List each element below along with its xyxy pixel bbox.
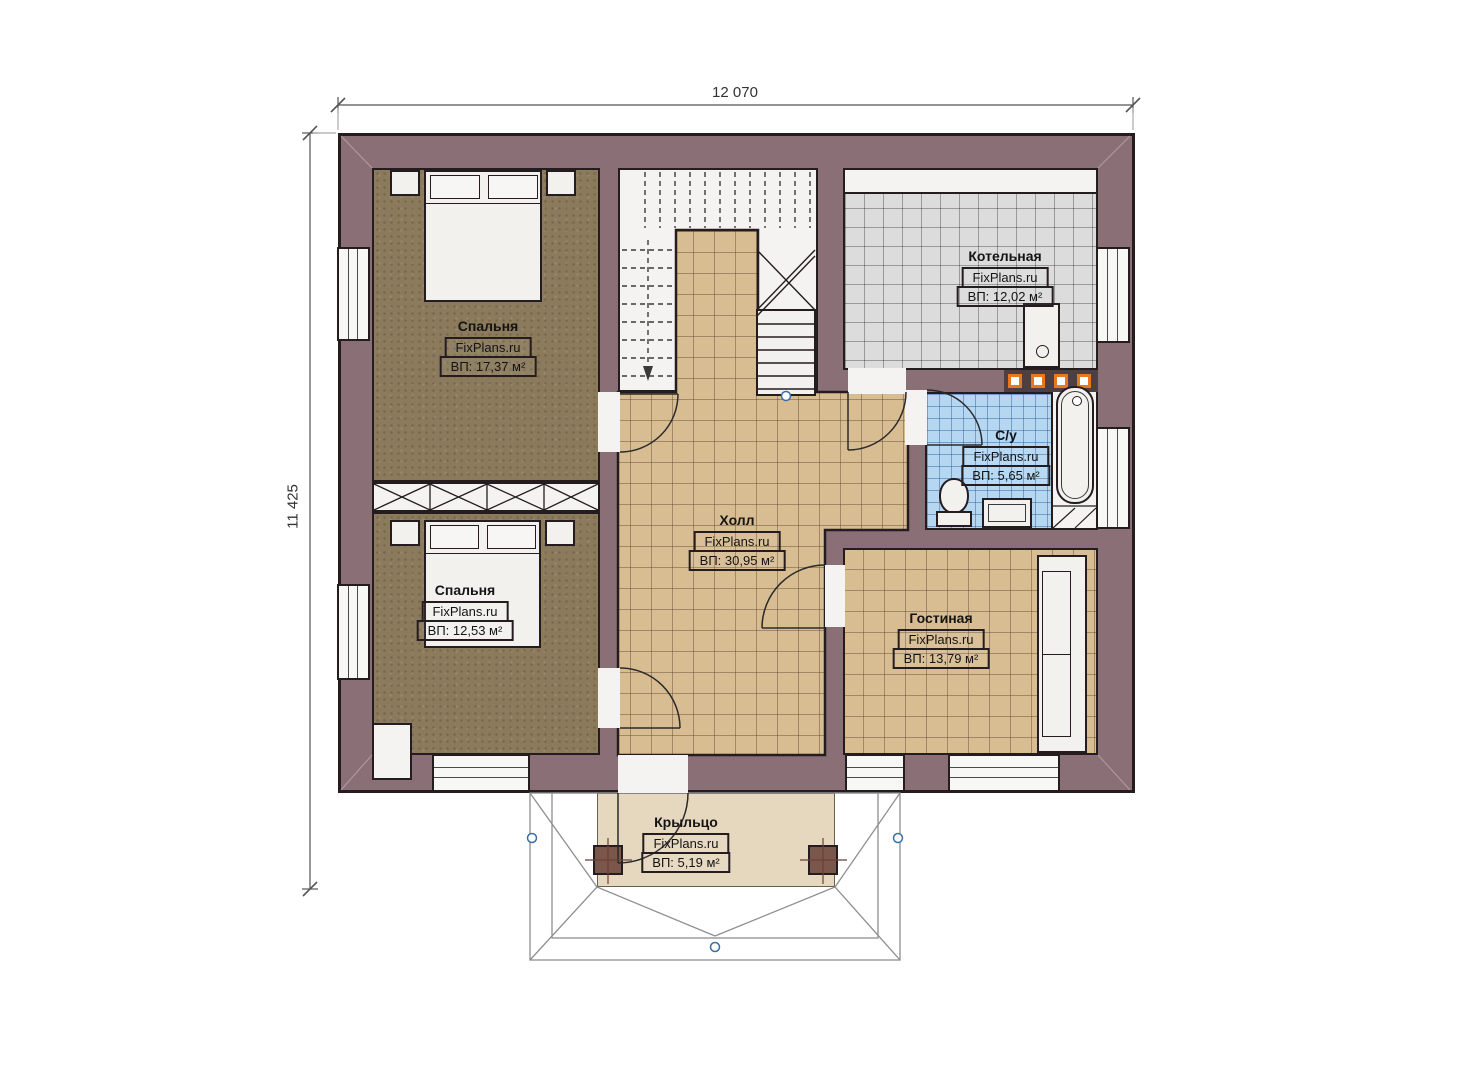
window-bedroom1-left bbox=[337, 247, 370, 341]
room-name: Спальня bbox=[417, 582, 514, 598]
room-label-hall: Холл FixPlans.ru ВП: 30,95 м² bbox=[689, 512, 786, 571]
dimension-top-label: 12 070 bbox=[712, 84, 758, 101]
double-bed-bedroom1 bbox=[424, 170, 542, 302]
room-label-bedroom2: Спальня FixPlans.ru ВП: 12,53 м² bbox=[417, 582, 514, 641]
watermark-badge: FixPlans.ru bbox=[897, 629, 984, 650]
dimension-line-top bbox=[331, 97, 1140, 130]
floor-plan-canvas: 12 070 11 425 Спальня FixPlans.ru ВП: 17… bbox=[0, 0, 1473, 1080]
window-living-bottom bbox=[948, 754, 1060, 792]
bathtub bbox=[1056, 386, 1094, 504]
room-area: ВП: 13,79 м² bbox=[893, 648, 990, 669]
porch-post-left bbox=[593, 845, 623, 875]
toilet-tank bbox=[936, 511, 972, 527]
sofa bbox=[1037, 555, 1087, 753]
dimension-line-left bbox=[302, 126, 336, 896]
window-boiler-right bbox=[1096, 247, 1130, 343]
bathtub-tap-icon bbox=[1072, 396, 1082, 406]
room-area: ВП: 5,19 м² bbox=[641, 852, 730, 873]
room-floor-hall-tongue bbox=[676, 230, 758, 394]
window-bedroom2-left bbox=[337, 584, 370, 680]
room-area: ВП: 12,53 м² bbox=[417, 620, 514, 641]
nightstand-bedroom2-left bbox=[390, 520, 420, 546]
room-name: Гостиная bbox=[893, 610, 990, 626]
room-area: ВП: 5,65 м² bbox=[961, 465, 1050, 486]
watermark-badge: FixPlans.ru bbox=[444, 337, 531, 358]
room-label-porch: Крыльцо FixPlans.ru ВП: 5,19 м² bbox=[641, 814, 730, 873]
wardrobe-strip bbox=[372, 482, 600, 512]
room-label-living: Гостиная FixPlans.ru ВП: 13,79 м² bbox=[893, 610, 990, 669]
door-gap-entry bbox=[618, 755, 688, 793]
corner-cabinet-bedroom2 bbox=[372, 723, 412, 780]
nightstand-bedroom1-right bbox=[546, 170, 576, 196]
nightstand-bedroom2-right bbox=[545, 520, 575, 546]
boiler-unit bbox=[1023, 303, 1060, 368]
room-floor-hall-upper bbox=[618, 392, 908, 530]
room-label-bathroom: С/у FixPlans.ru ВП: 5,65 м² bbox=[961, 427, 1050, 486]
room-area: ВП: 30,95 м² bbox=[689, 550, 786, 571]
room-area: ВП: 17,37 м² bbox=[440, 356, 537, 377]
room-name: Котельная bbox=[957, 248, 1054, 264]
door-gap-boiler bbox=[848, 368, 906, 394]
door-gap-living bbox=[825, 565, 845, 627]
window-bathroom-right bbox=[1096, 427, 1130, 529]
window-bedroom2-bottom bbox=[432, 754, 530, 792]
watermark-badge: FixPlans.ru bbox=[642, 833, 729, 854]
door-gap-bedroom2 bbox=[598, 668, 620, 728]
nightstand-bedroom1-left bbox=[390, 170, 420, 196]
watermark-badge: FixPlans.ru bbox=[421, 601, 508, 622]
door-gap-bedroom1 bbox=[598, 392, 620, 452]
porch-post-right bbox=[808, 845, 838, 875]
dimension-left-label: 11 425 bbox=[285, 472, 302, 542]
room-name: С/у bbox=[961, 427, 1050, 443]
room-label-bedroom1: Спальня FixPlans.ru ВП: 17,37 м² bbox=[440, 318, 537, 377]
watermark-badge: FixPlans.ru bbox=[693, 531, 780, 552]
room-label-boiler: Котельная FixPlans.ru ВП: 12,02 м² bbox=[957, 248, 1054, 307]
room-name: Холл bbox=[689, 512, 786, 528]
room-area: ВП: 12,02 м² bbox=[957, 286, 1054, 307]
boiler-counter bbox=[843, 168, 1098, 194]
door-gap-bathroom bbox=[905, 390, 927, 445]
sink-vanity bbox=[982, 498, 1032, 528]
watermark-badge: FixPlans.ru bbox=[962, 446, 1049, 467]
window-hall-bottom bbox=[845, 754, 905, 792]
room-name: Крыльцо bbox=[641, 814, 730, 830]
room-name: Спальня bbox=[440, 318, 537, 334]
watermark-badge: FixPlans.ru bbox=[961, 267, 1048, 288]
